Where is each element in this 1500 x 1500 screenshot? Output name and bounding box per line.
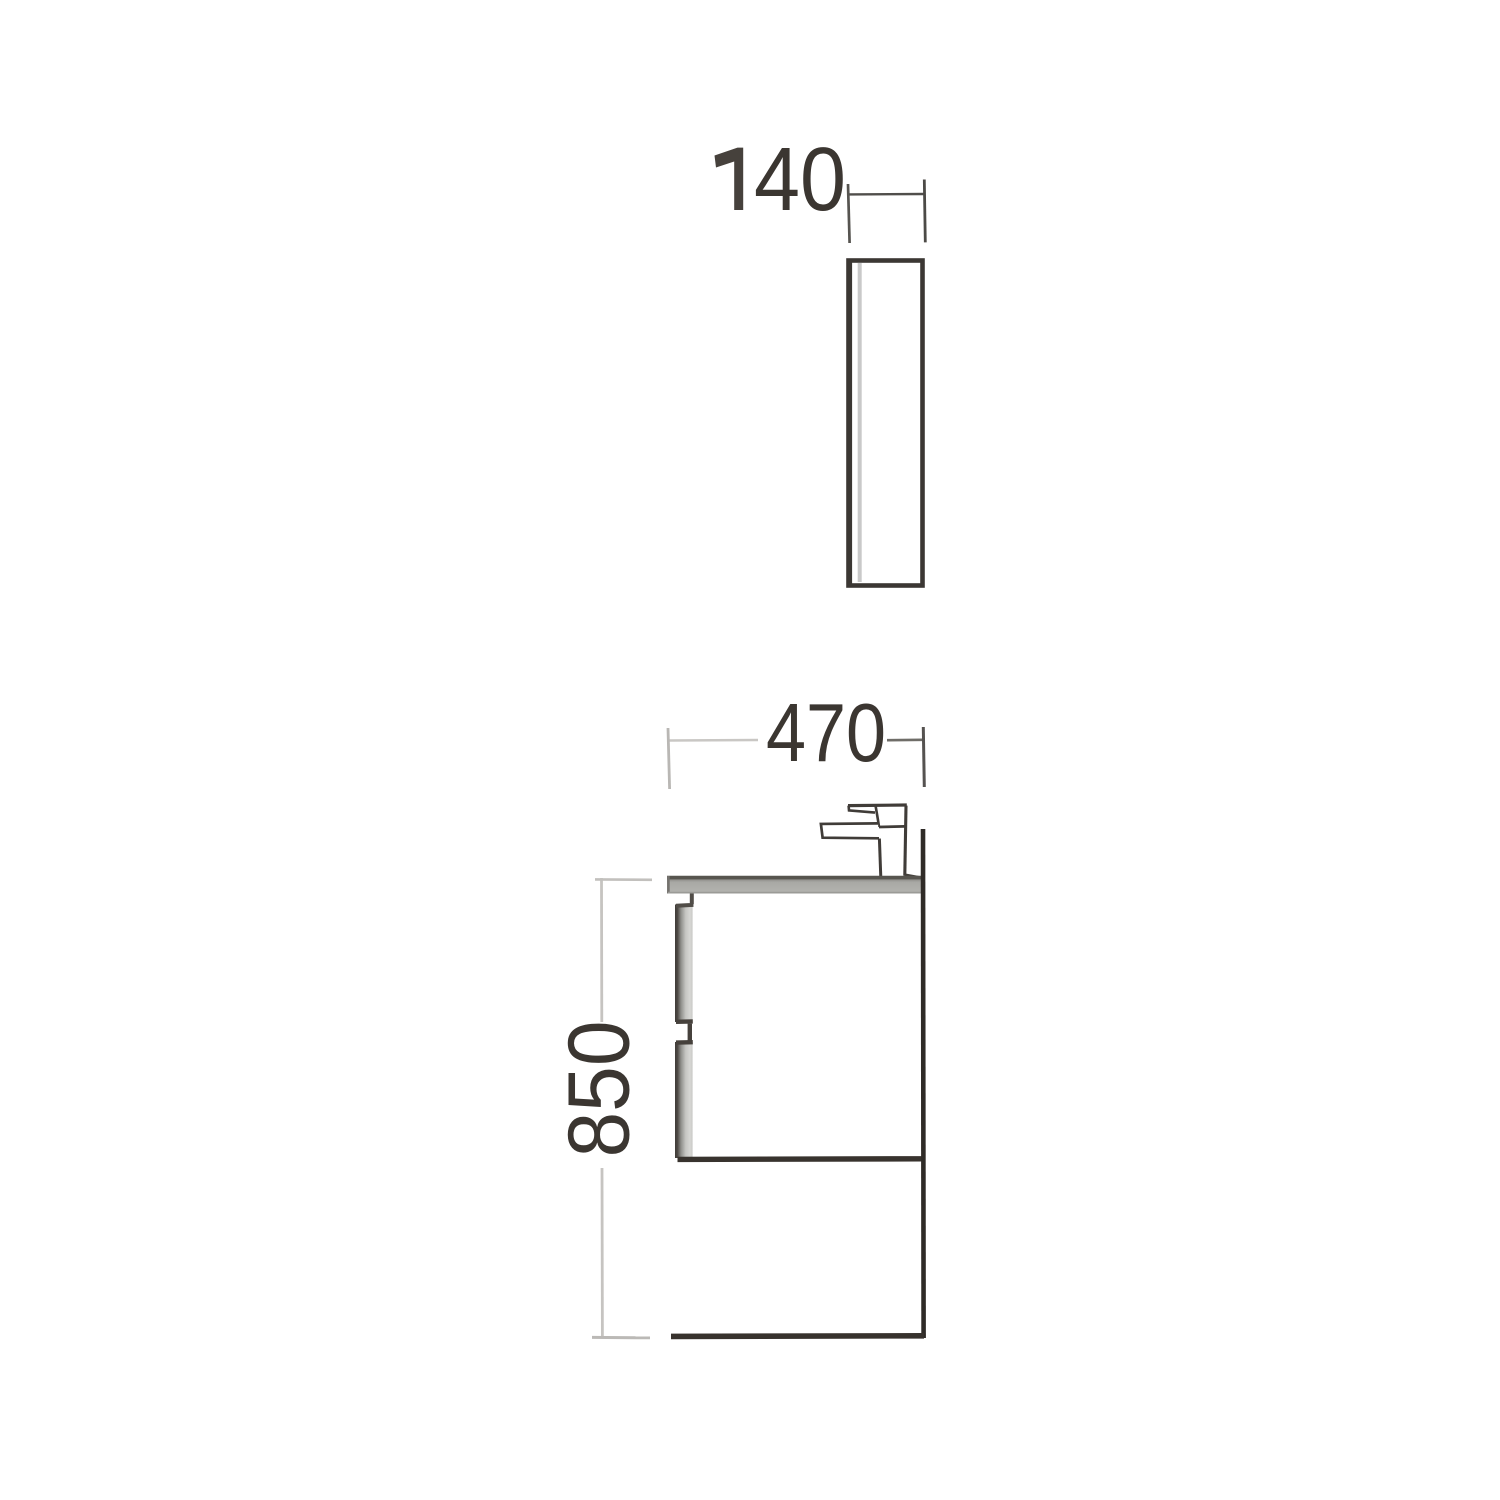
svg-text:470: 470 (766, 686, 886, 779)
svg-text:850: 850 (551, 1021, 648, 1158)
svg-text:40: 40 (754, 130, 846, 230)
